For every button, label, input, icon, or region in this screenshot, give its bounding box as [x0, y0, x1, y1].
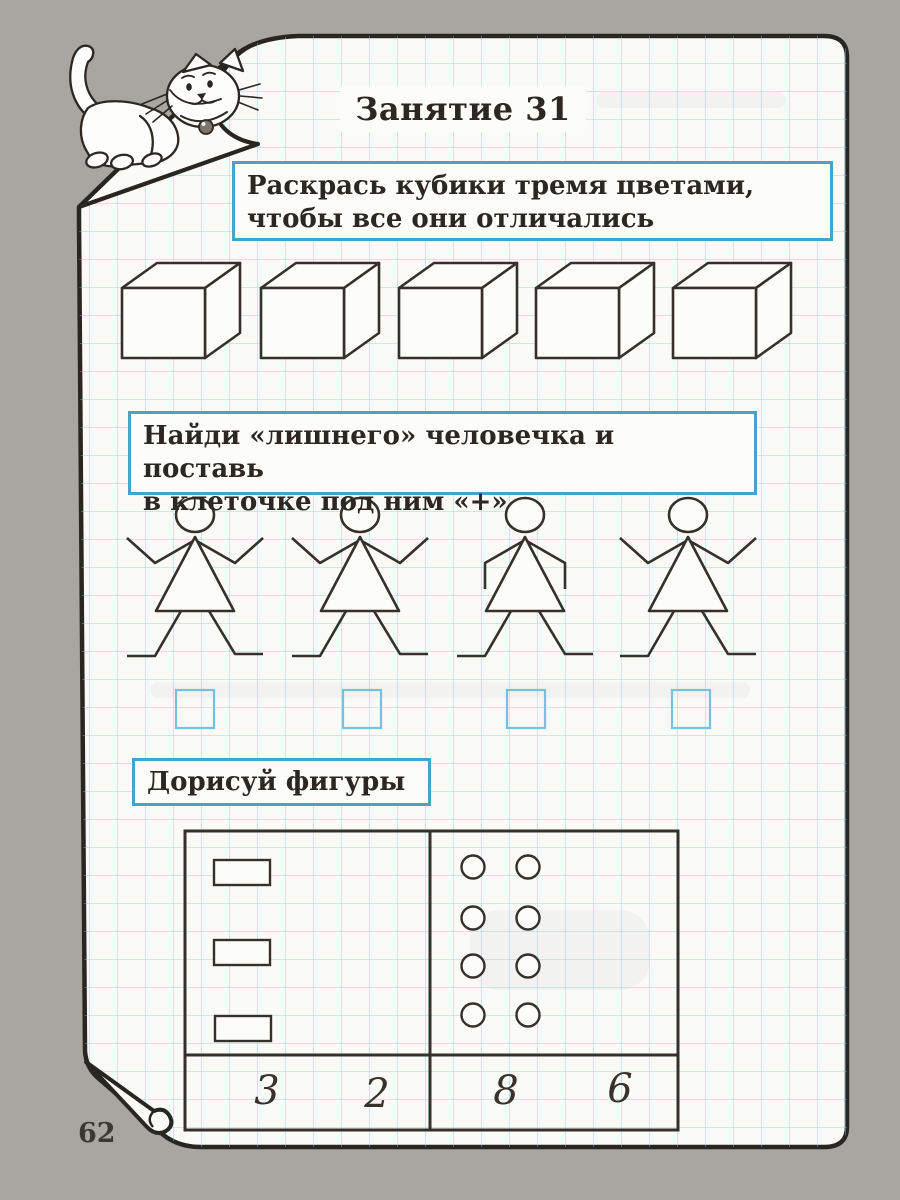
task3-instruction-text: Дорисуй фигуры — [147, 766, 405, 799]
table-number-3: 8 — [493, 1068, 518, 1114]
page-number: 62 — [78, 1118, 116, 1149]
cubes-row — [122, 263, 791, 358]
small-circle — [462, 856, 485, 879]
small-circle — [462, 955, 485, 978]
lesson-title: Занятие 31 — [340, 86, 586, 132]
task1-instruction-line1: Раскрась кубики тремя цветами, — [247, 170, 818, 203]
scanned-workbook-page: Занятие 31 Раскрась кубики тремя цветами… — [0, 0, 900, 1200]
cube-2 — [261, 263, 379, 358]
cube-5 — [673, 263, 791, 358]
cube-1 — [122, 263, 240, 358]
small-rectangle — [215, 1016, 271, 1041]
small-rectangle — [214, 940, 270, 965]
task2-instruction-line2: в клеточке под ним «+» — [143, 486, 742, 519]
small-circle — [462, 907, 485, 930]
small-rectangle — [214, 860, 270, 885]
small-circle — [517, 907, 540, 930]
task3-instruction: Дорисуй фигуры — [132, 758, 431, 806]
cube-4 — [536, 263, 654, 358]
cube-3 — [399, 263, 517, 358]
small-circle — [517, 955, 540, 978]
small-circle — [517, 1004, 540, 1027]
small-circle — [462, 1004, 485, 1027]
table-number-2: 2 — [364, 1071, 389, 1117]
task2-instruction: Найди «лишнего» человечка и поставь в кл… — [128, 411, 757, 495]
table-number-4: 6 — [607, 1066, 632, 1112]
task1-instruction: Раскрась кубики тремя цветами, чтобы все… — [232, 161, 833, 241]
cat-bell — [199, 120, 213, 134]
small-circle — [517, 856, 540, 879]
table-number-1: 3 — [254, 1068, 279, 1114]
task1-instruction-line2: чтобы все они отличались — [247, 203, 818, 236]
task2-instruction-line1: Найди «лишнего» человечка и поставь — [143, 420, 742, 486]
